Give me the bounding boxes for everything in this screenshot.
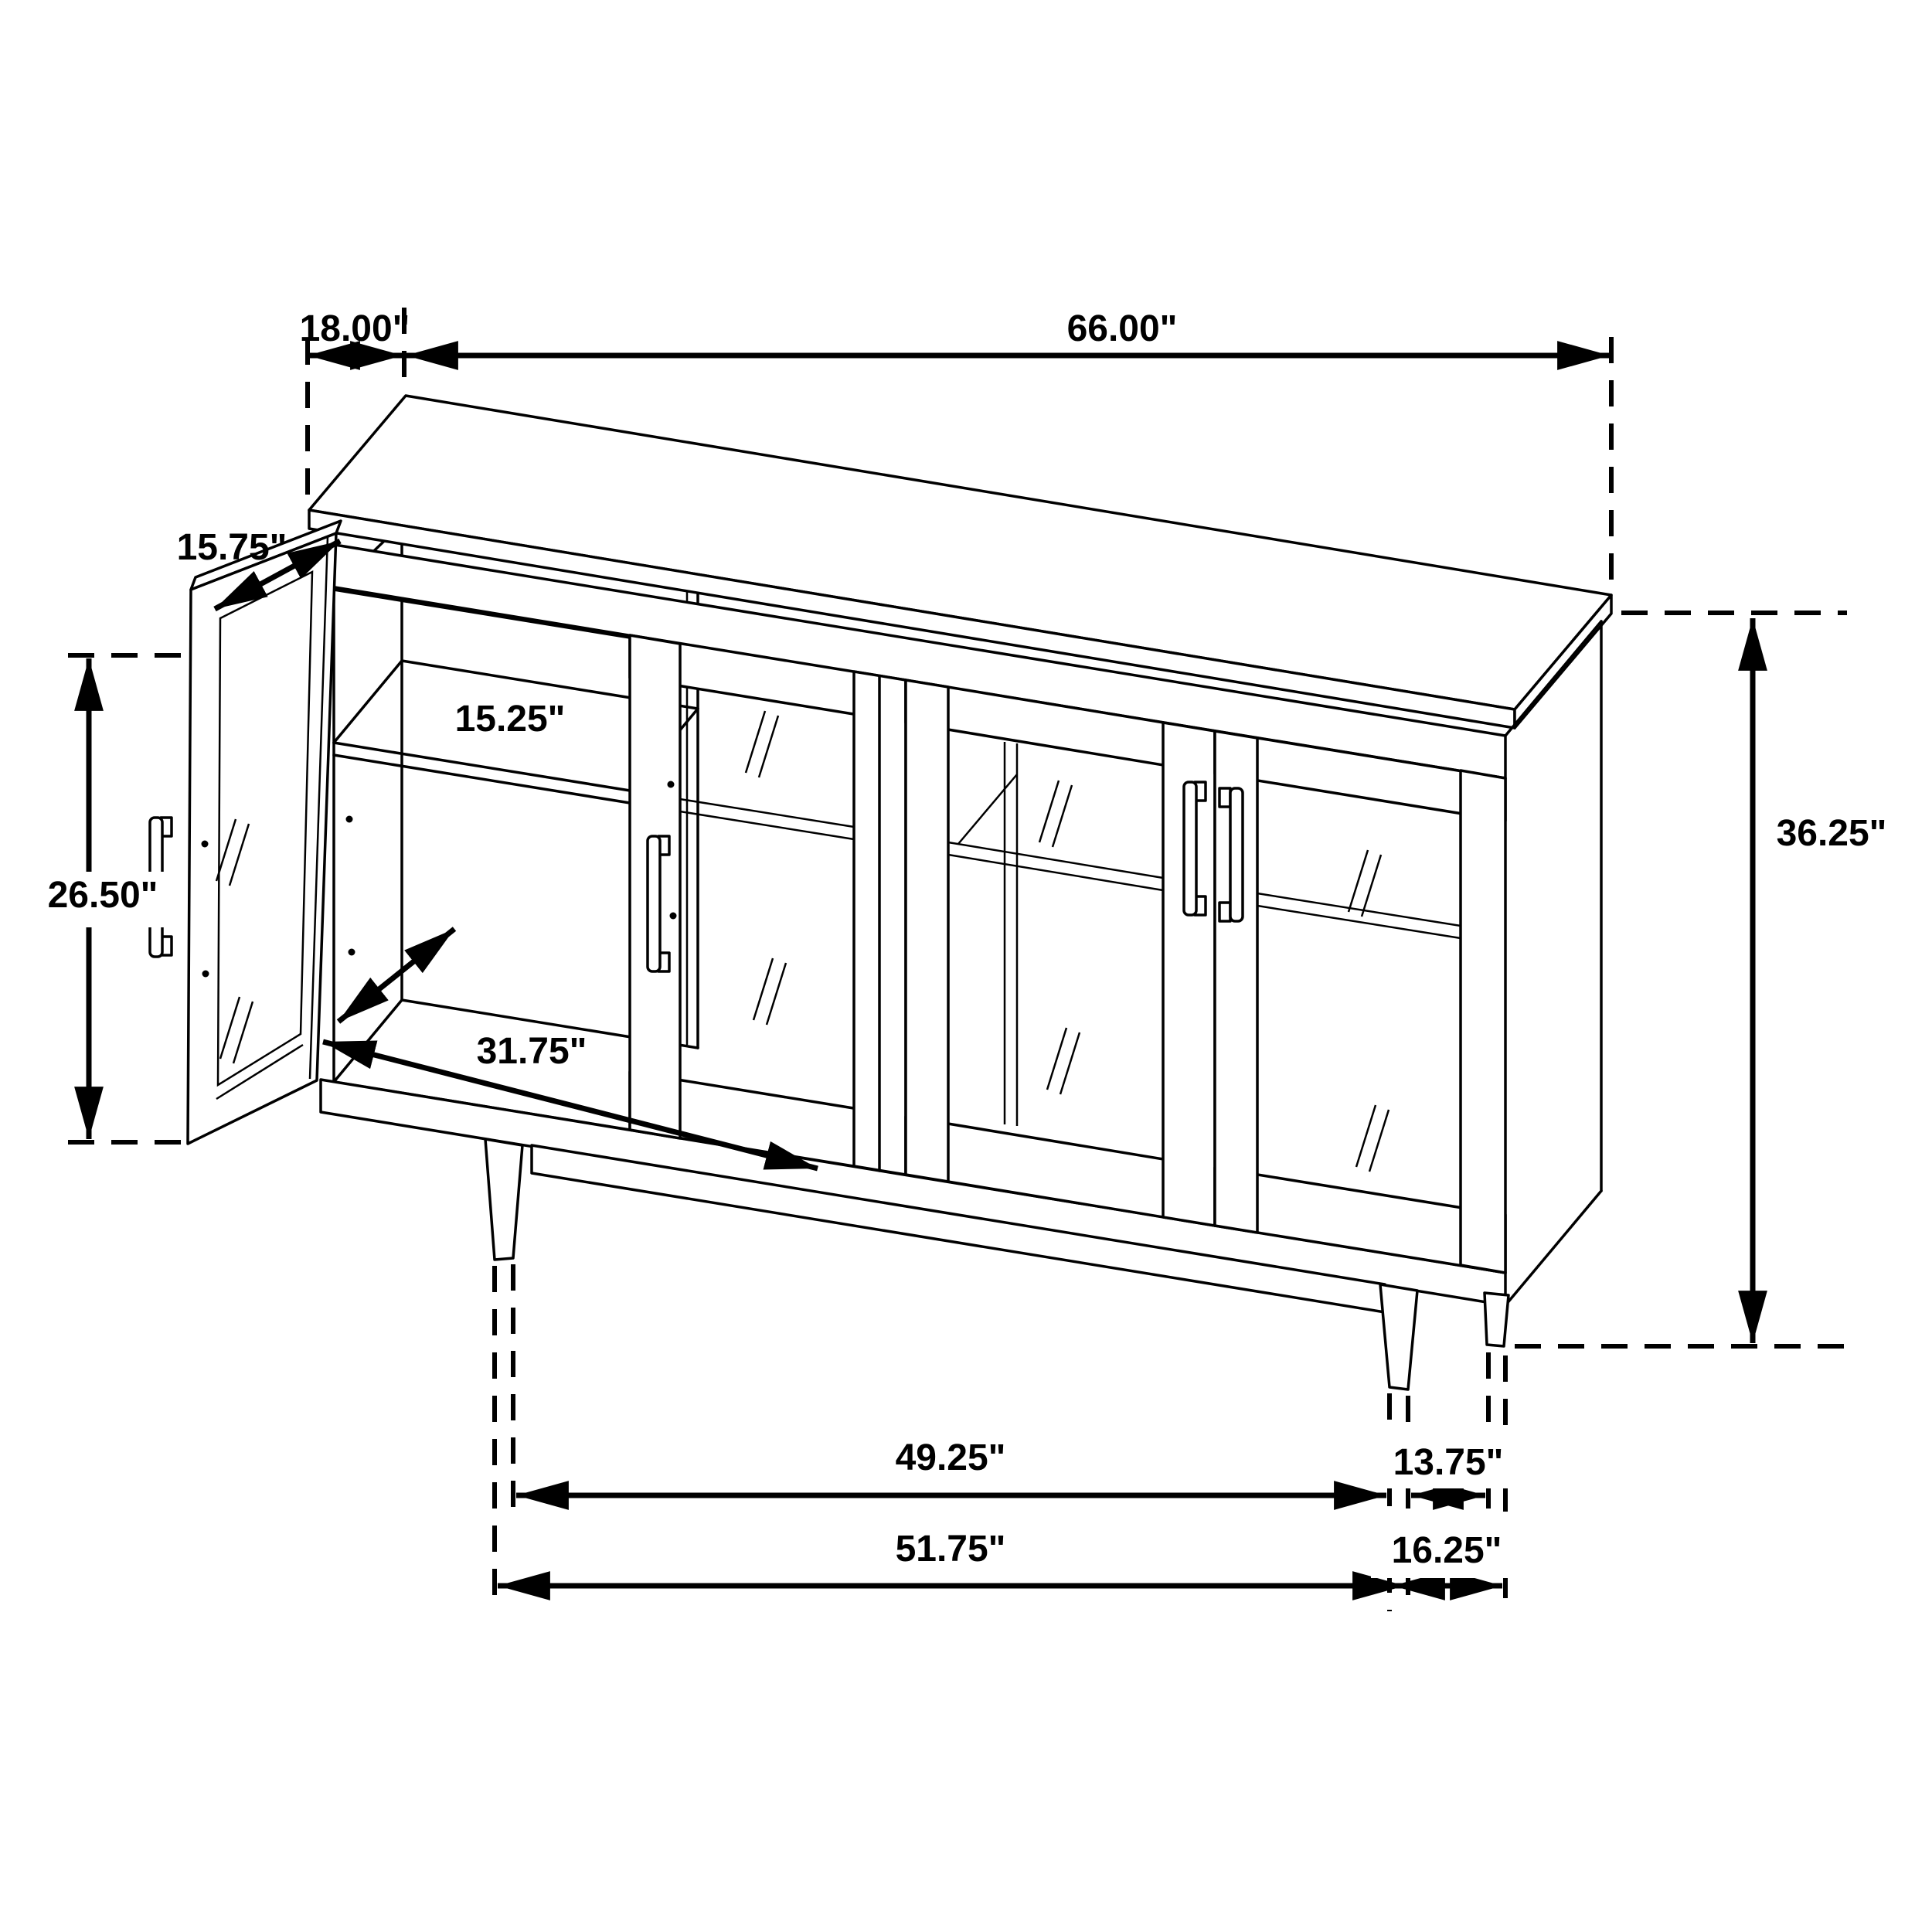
cabinet-dimension-diagram: 18.00" 66.00" 15.75" 15.25" 26.50" 31.75…: [0, 0, 1932, 1932]
dim-label-side-leg-span-outer: 16.25": [1392, 1530, 1502, 1571]
dim-label-front-leg-span-inner: 49.25": [896, 1437, 1006, 1478]
glass-door-3: [906, 680, 1215, 1226]
dim-label-top-width: 66.00": [1067, 308, 1178, 349]
dim-label-door-width: 15.75": [177, 527, 287, 568]
dim-label-interior-diagonal: 31.75": [477, 1031, 587, 1072]
dim-label-top-depth: 18.00": [300, 308, 410, 349]
front-right-leg: [1380, 1284, 1417, 1389]
dim-label-shelf-depth: 15.25": [455, 699, 566, 740]
glass-door-4: [1215, 731, 1505, 1273]
glass-door-2: [630, 635, 906, 1175]
dim-label-door-height: 26.50": [48, 875, 158, 916]
dimension-diagram-page: 18.00" 66.00" 15.75" 15.25" 26.50" 31.75…: [0, 0, 1932, 1932]
dim-label-front-leg-span-outer: 51.75": [896, 1529, 1006, 1570]
open-door-face: [188, 533, 336, 1144]
dim-label-total-height: 36.25": [1777, 813, 1887, 854]
rear-right-leg: [1485, 1293, 1509, 1346]
open-glass-door: [150, 521, 341, 1144]
dim-label-side-leg-span-inner: 13.75": [1393, 1442, 1504, 1483]
front-left-leg: [485, 1139, 522, 1260]
